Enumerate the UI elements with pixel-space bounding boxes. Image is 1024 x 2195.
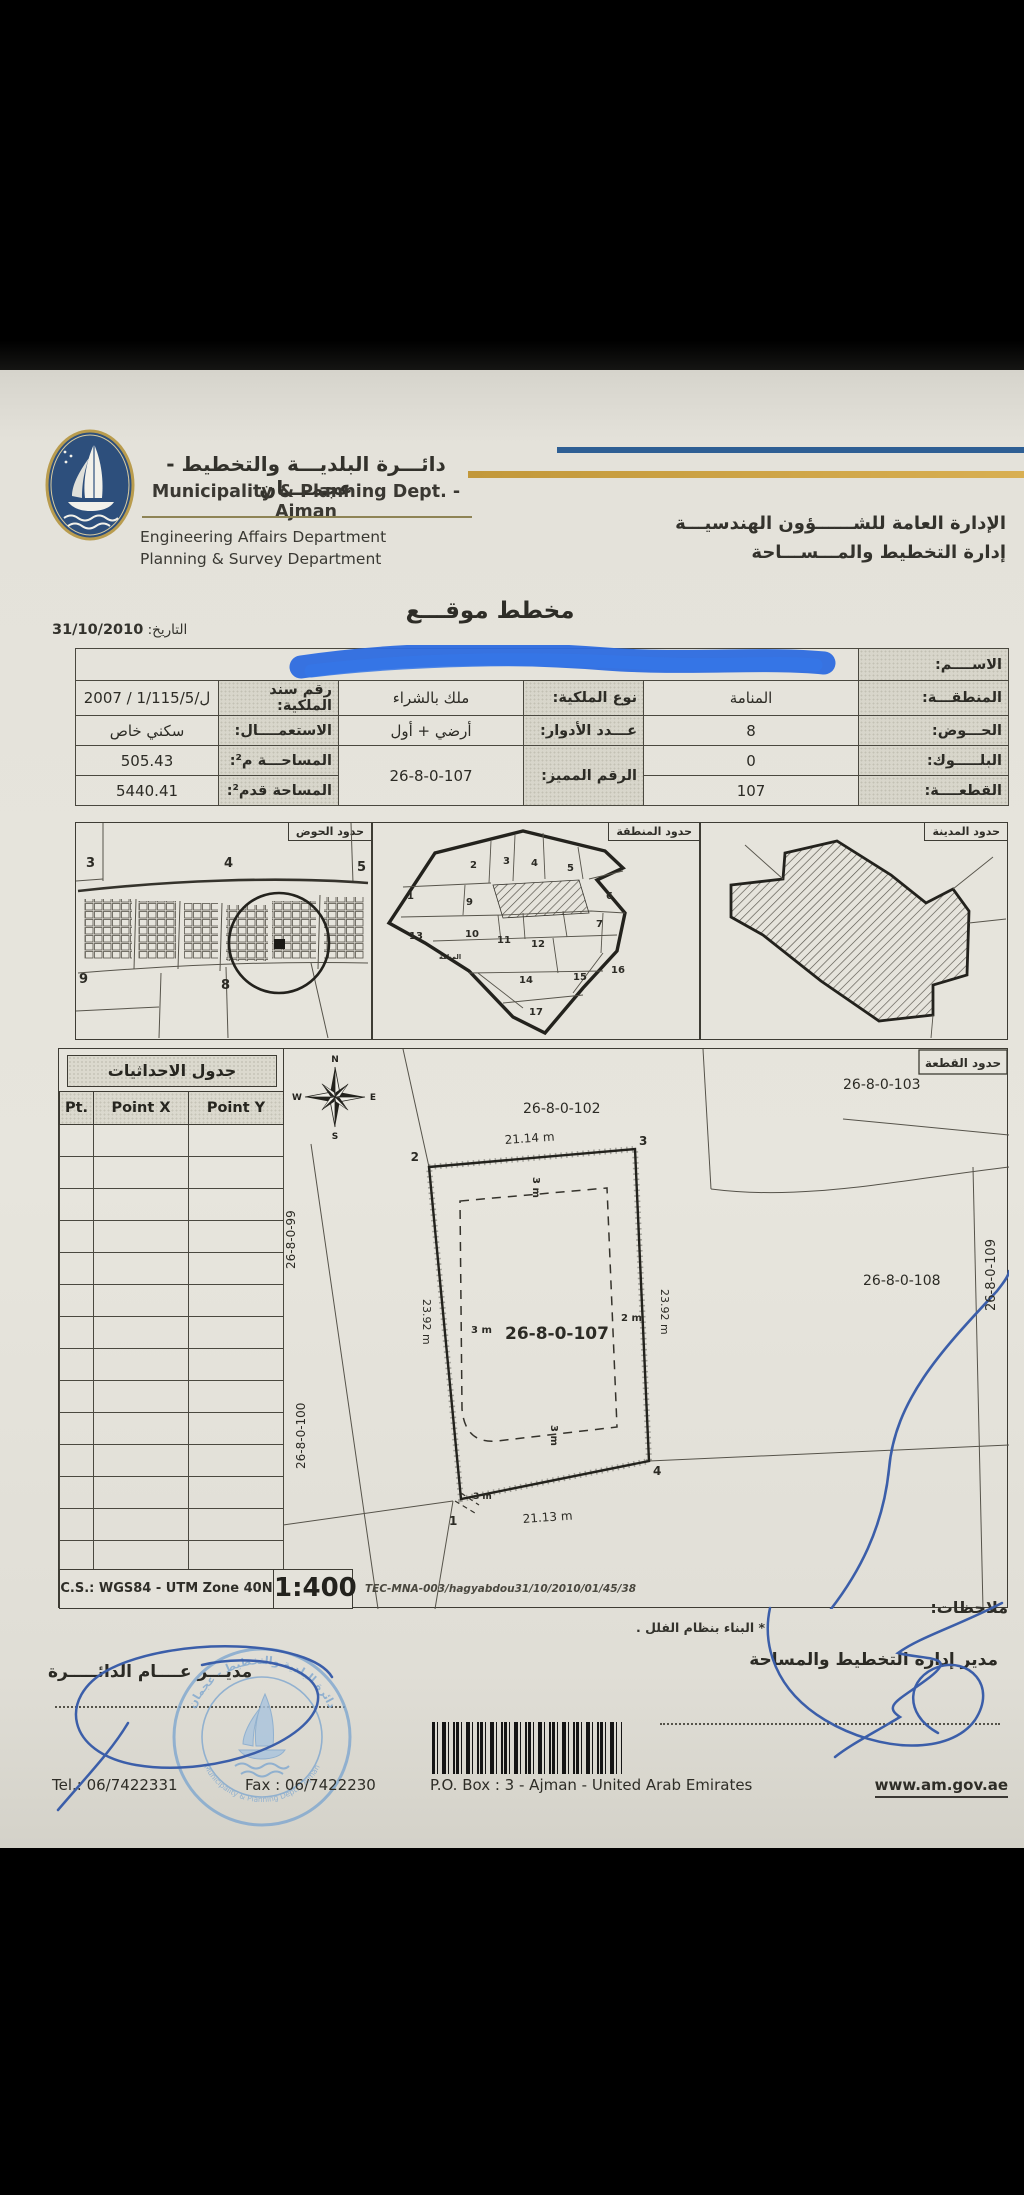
district-number: 10 (465, 929, 479, 940)
district-number: 15 (573, 972, 587, 983)
signature-left-tail (58, 1723, 128, 1810)
table-row (60, 1445, 284, 1477)
header-divider (142, 516, 472, 518)
po-box: P.O. Box : 3 - Ajman - United Arab Emira… (430, 1776, 752, 1794)
district-boundaries-map: حدود المنطقة 1 2 3 4 5 (372, 822, 700, 1040)
table-row: الاســــم: (76, 649, 1009, 681)
ownership-value: ملك بالشراء (339, 681, 524, 716)
ownership-label: نوع الملكية: (524, 681, 644, 716)
compass-s: S (332, 1132, 338, 1142)
deed-label: رقم سند الملكية: (219, 681, 339, 716)
date-label: التاريخ: (148, 622, 188, 638)
municipality-logo-icon (44, 428, 136, 542)
district-number: 17 (529, 1007, 543, 1018)
compass-n: N (331, 1055, 339, 1065)
table-header-row: Pt. Point X Point Y (60, 1092, 284, 1125)
setback-top: 3 m (530, 1177, 541, 1198)
table-row (60, 1189, 284, 1221)
basin-map-drawing: 3 4 5 9 8 (76, 823, 370, 1038)
plot-plan-section: جدول الاحداثيات Pt. Point X Point Y (58, 1048, 1008, 1608)
table-row (60, 1125, 284, 1157)
basin-boundaries-map: حدود الحوض 3 4 (75, 822, 372, 1040)
district-number: 1 (407, 891, 414, 902)
neighbor-plot-102: 26-8-0-102 (523, 1101, 601, 1117)
area-value: المنامة (644, 681, 859, 716)
floors-value: أرضي + أول (339, 716, 524, 746)
plot-location-marker (274, 939, 285, 949)
plot-info-table: الاســــم: المنطقـــة: المنامة نوع الملك… (75, 648, 1009, 806)
official-stamp-icon: دائرة البلدية والتخطيط - عجمان Municipal… (167, 1642, 357, 1832)
district-number: 3 (503, 856, 510, 867)
table-row (60, 1541, 284, 1573)
table-row (60, 1285, 284, 1317)
area-ft2-label: المساحة قدم²: (219, 776, 339, 806)
use-label: الاستعمــــال: (219, 716, 339, 746)
table-row (60, 1349, 284, 1381)
district-number: 7 (596, 919, 603, 930)
plot-number: 26-8-0-107 (505, 1324, 609, 1344)
compass-e: E (370, 1093, 376, 1103)
block-value: 0 (644, 746, 859, 776)
table-row (60, 1221, 284, 1253)
notes-label: ملاحظات: (930, 1598, 1008, 1617)
director-planning-title: مدير إدارة التخطيط والمساحة (749, 1650, 998, 1670)
corner-point-2: 2 (411, 1150, 419, 1164)
plot-label: القطعــــة: (859, 776, 1009, 806)
table-row (60, 1413, 284, 1445)
district-number: 11 (497, 935, 511, 946)
setback-dashed-line (460, 1188, 617, 1441)
table-row (60, 1317, 284, 1349)
district-number: 9 (466, 897, 473, 908)
setback-bottom: 3 m (548, 1425, 559, 1446)
document-sheet: دائـــرة البلديـــة والتخطيط - عجمــــان… (0, 370, 1024, 1848)
district-number: 13 (409, 931, 423, 942)
signature-right (835, 1603, 1002, 1757)
area-m2-value: 505.43 (76, 746, 219, 776)
plan-title: حدود القطعة (925, 1056, 1001, 1071)
table-row: البلـــــوك: 0 الرقم المميز: 26-8-0-107 … (76, 746, 1009, 776)
telephone: Tel.: 06/7422331 (52, 1776, 178, 1794)
district-number: 2 (470, 860, 477, 871)
barcode (432, 1722, 622, 1774)
file-reference: TEC-MNA-003/hagyabdou31/10/2010/01/45/38 (365, 1583, 636, 1595)
neighbor-plot-108: 26-8-0-108 (863, 1273, 941, 1289)
basin-number: 4 (224, 856, 233, 871)
coordinates-table-title: جدول الاحداثيات (67, 1055, 277, 1087)
unique-number-label: الرقم المميز: (524, 746, 644, 806)
table-row (60, 1253, 284, 1285)
city-hatched-area (731, 841, 969, 1021)
basin-number: 9 (79, 972, 88, 987)
col-point-y: Point Y (189, 1092, 284, 1125)
district-number: 5 (567, 863, 574, 874)
document-title: مخطط موقـــع (360, 598, 620, 624)
signature-line-right (660, 1723, 1000, 1725)
col-point-x: Point X (94, 1092, 189, 1125)
block-label: البلـــــوك: (859, 746, 1009, 776)
neighbor-plot-99: 26-8-0-99 (284, 1210, 298, 1269)
date-value: 31/10/2010 (52, 622, 143, 638)
neighbor-plot-109: 26-8-0-109 (984, 1239, 999, 1311)
unique-number-value: 26-8-0-107 (339, 746, 524, 806)
setback-corner: 3 m (473, 1492, 492, 1502)
header-gold-bar (468, 471, 1024, 478)
area-ft2-value: 5440.41 (76, 776, 219, 806)
neighbor-plot-103: 26-8-0-103 (843, 1077, 921, 1093)
basin-number: 8 (221, 978, 230, 993)
basin-label: الحـــوض: (859, 716, 1009, 746)
date-line: التاريخ: 31/10/2010 (52, 622, 187, 638)
note-villas-system: * البناء بنظام الفلل . (636, 1620, 765, 1635)
compass-w: W (292, 1093, 302, 1103)
setback-left: 3 m (471, 1325, 492, 1336)
district-number: 12 (531, 939, 545, 950)
district-number: 6 (606, 891, 613, 902)
basin-number: 5 (357, 860, 366, 875)
sub-department-1: Engineering Affairs Department (140, 528, 386, 546)
district-8-hatched-zone (493, 880, 589, 918)
photo-of-site-plan-document: { "header": { "dept_ar": "دائـــرة البلد… (0, 0, 1024, 2195)
letterbox-bottom (0, 1848, 1024, 2195)
scale-value: 1:400 (273, 1569, 353, 1609)
signature-ink-overlay (0, 1585, 1024, 1835)
neighbor-plot-100: 26-8-0-100 (294, 1403, 308, 1469)
corner-point-1: 1 (449, 1514, 457, 1528)
letterbox-top (0, 0, 1024, 370)
floors-label: عـــدد الأدوار: (524, 716, 644, 746)
table-row (60, 1381, 284, 1413)
general-admin-arabic: الإدارة العامة للشــــــؤون الهندسيـــة (675, 513, 1006, 534)
dimension-bottom: 21.13 m (522, 1509, 573, 1526)
district-number: 4 (531, 858, 538, 869)
district-map-drawing: 1 2 3 4 5 6 7 9 10 11 12 13 14 15 16 17 … (373, 823, 698, 1038)
city-boundaries-map: حدود المدينة (700, 822, 1008, 1040)
planning-admin-arabic: إدارة التخطيط والمـــســـاحة (751, 542, 1006, 563)
deed-value: 2007 / 1/115/5/ل (76, 681, 219, 716)
setback-right: 2 m (621, 1313, 642, 1324)
table-row (60, 1157, 284, 1189)
city-map-drawing (701, 823, 1006, 1038)
district-number: 16 (611, 965, 625, 976)
plot-value: 107 (644, 776, 859, 806)
blue-marker-redaction (76, 645, 856, 683)
dimension-left: 23.92 m (420, 1299, 433, 1345)
table-row: المنطقـــة: المنامة نوع الملكية: ملك بال… (76, 681, 1009, 716)
coordinate-system-label: C.S.: WGS84 - UTM Zone 40N (59, 1569, 274, 1609)
coordinates-table: Pt. Point X Point Y (59, 1091, 284, 1605)
website: www.am.gov.ae (875, 1776, 1008, 1798)
dimension-top: 21.14 m (504, 1130, 555, 1147)
district-town-label: المنامة (439, 953, 461, 961)
fax: Fax : 06/7422230 (245, 1776, 376, 1794)
table-row (60, 1477, 284, 1509)
dimension-right: 23.92 m (658, 1289, 671, 1335)
name-value-redacted (76, 649, 859, 681)
use-value: سكني خاص (76, 716, 219, 746)
area-label: المنطقـــة: (859, 681, 1009, 716)
col-pt: Pt. (60, 1092, 94, 1125)
table-row (60, 1509, 284, 1541)
table-row: الحـــوض: 8 عـــدد الأدوار: أرضي + أول ا… (76, 716, 1009, 746)
name-label: الاســــم: (859, 649, 1009, 681)
area-m2-label: المساحـــة م²: (219, 746, 339, 776)
compass-rose-icon: N E S W (292, 1055, 376, 1142)
corner-point-3: 3 (639, 1134, 647, 1148)
sub-department-2: Planning & Survey Department (140, 550, 381, 568)
header-blue-bar (557, 447, 1024, 453)
district-number: 14 (519, 975, 533, 986)
basin-number: 3 (86, 856, 95, 871)
plot-plan-drawing: 26-8-0-102 26-8-0-103 26-8-0-108 26-8-0-… (283, 1049, 1009, 1609)
basin-value: 8 (644, 716, 859, 746)
corner-point-4: 4 (653, 1464, 661, 1478)
